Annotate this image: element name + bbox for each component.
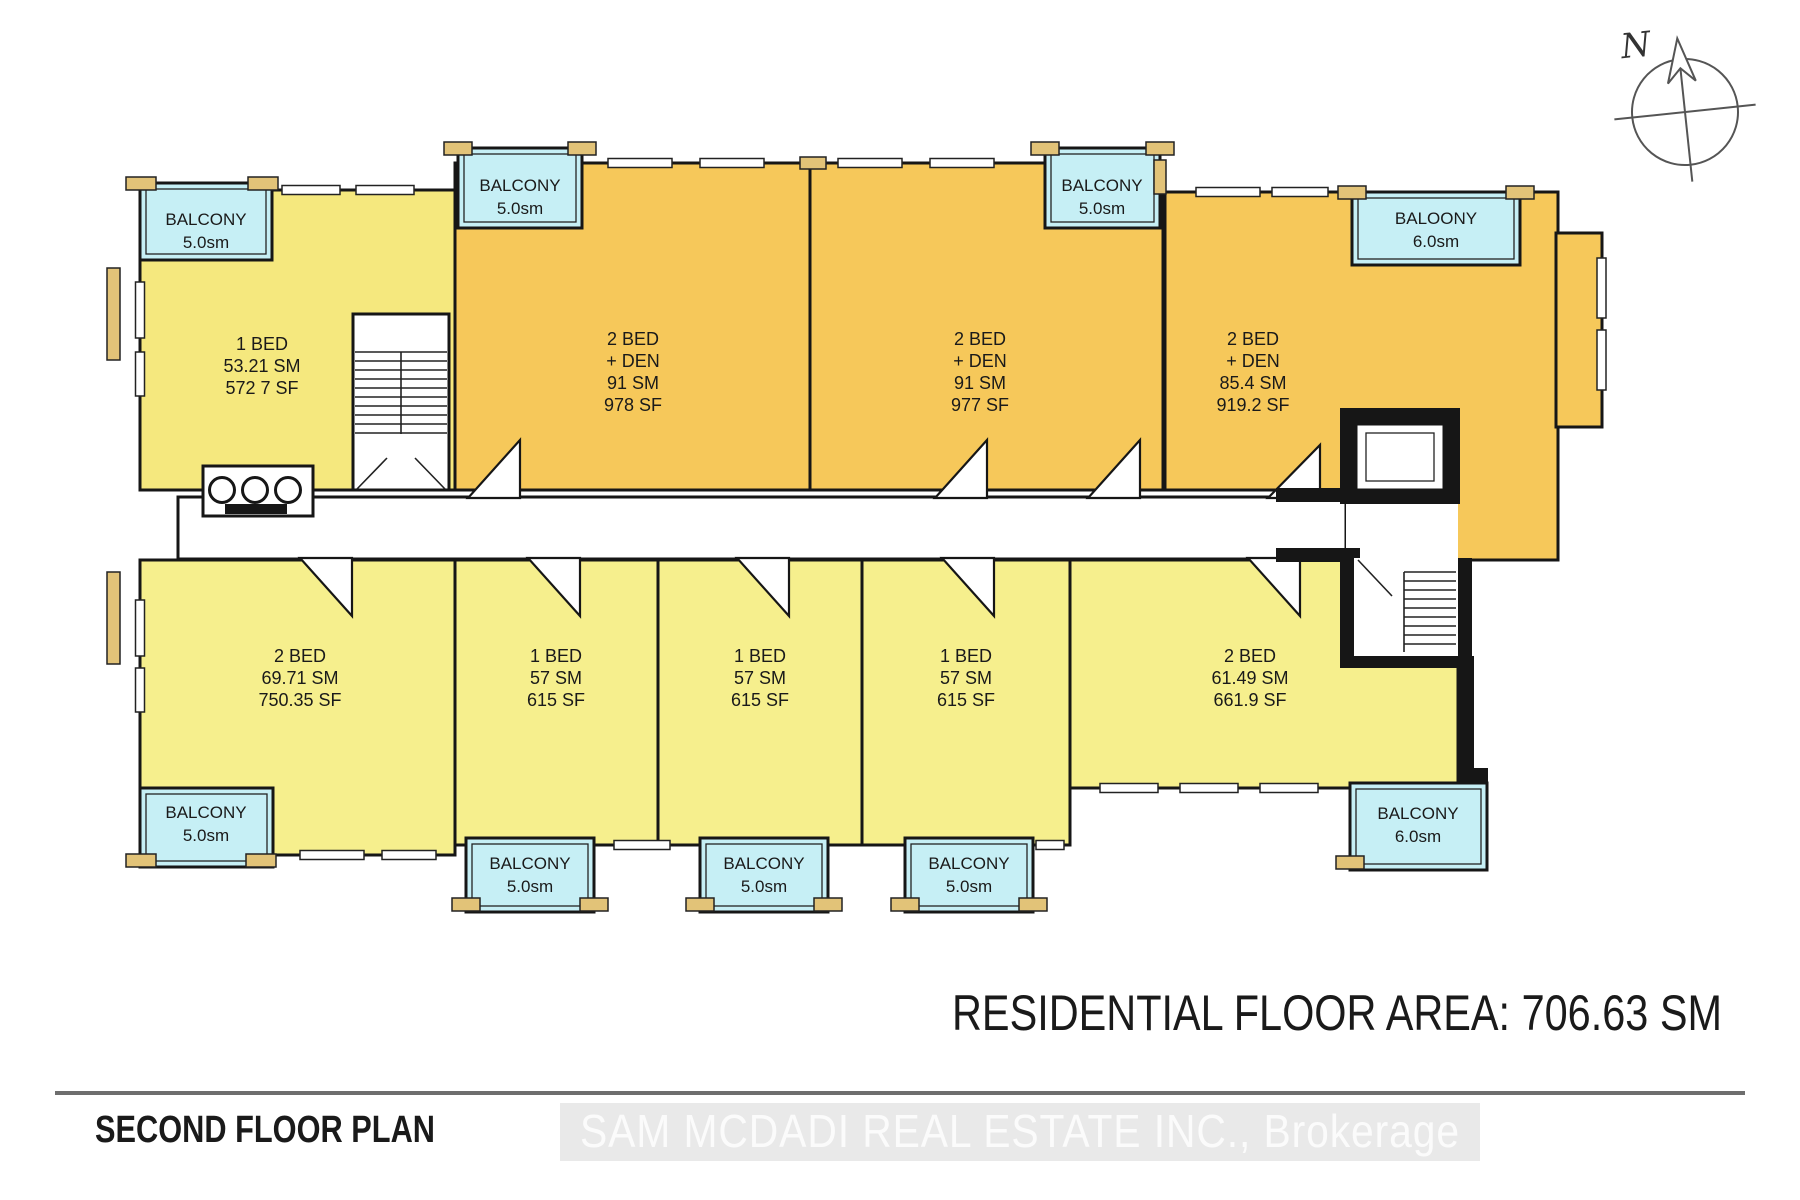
svg-text:57 SM: 57 SM [530,668,582,688]
wall-trim-block [568,142,596,155]
bay-window [1556,233,1602,427]
chute-circle [243,478,268,503]
svg-text:572 7 SF: 572 7 SF [225,378,298,398]
north-compass: N [1605,14,1763,189]
wall-trim-block [246,854,276,867]
core-wall [1458,768,1488,784]
svg-text:BALCONY: BALCONY [489,854,570,873]
balcony-bottom-unit7 [686,838,842,912]
svg-text:69.71 SM: 69.71 SM [261,668,338,688]
chute-circle [276,478,301,503]
svg-text:6.0sm: 6.0sm [1395,827,1441,846]
svg-text:661.9 SF: 661.9 SF [1213,690,1286,710]
svg-text:91 SM: 91 SM [954,373,1006,393]
wall-trim-block [107,572,120,664]
wall-trim-block [686,898,714,911]
core-wall [1276,488,1346,502]
svg-text:BALCONY: BALCONY [165,210,246,229]
svg-text:+ DEN: + DEN [953,351,1007,371]
wall-trim-block [814,898,842,911]
svg-text:5.0sm: 5.0sm [183,826,229,845]
svg-text:2 BED: 2 BED [607,329,659,349]
corridor [178,497,1346,559]
svg-text:6.0sm: 6.0sm [1413,232,1459,251]
svg-text:BALOONY: BALOONY [1395,209,1477,228]
wall-trim-block [580,898,608,911]
svg-text:61.49 SM: 61.49 SM [1211,668,1288,688]
svg-text:+ DEN: + DEN [606,351,660,371]
svg-text:1 BED: 1 BED [236,334,288,354]
wall-trim-block [126,854,156,867]
balcony-bottom-unit6 [452,838,608,912]
svg-text:57 SM: 57 SM [940,668,992,688]
svg-text:5.0sm: 5.0sm [497,199,543,218]
svg-text:1 BED: 1 BED [734,646,786,666]
unit-label-1-bed-bottom-a: 1 BED 57 SM 615 SF [527,646,585,710]
wall-trim-block [1336,856,1364,869]
wall-trim-block [444,142,472,155]
svg-text:615 SF: 615 SF [937,690,995,710]
svg-text:5.0sm: 5.0sm [946,877,992,896]
wall-trim-block [1031,142,1059,155]
svg-text:BALCONY: BALCONY [479,176,560,195]
svg-text:919.2 SF: 919.2 SF [1216,395,1289,415]
svg-text:1 BED: 1 BED [530,646,582,666]
elevator-shaft [1356,424,1444,490]
wall-trim-block [248,177,278,190]
wall-trim-block [1146,142,1174,155]
footer-divider [55,1091,1745,1095]
wall-trim-block [800,157,826,169]
stairwell-top [353,314,449,490]
svg-text:5.0sm: 5.0sm [183,233,229,252]
wall-trim-block [891,898,919,911]
floor-plan-drawing: 1 BED 53.21 SM 572 7 SF 2 BED + DEN 91 S… [0,0,1800,1200]
wall-trim-block [126,177,156,190]
svg-text:BALCONY: BALCONY [723,854,804,873]
svg-text:977 SF: 977 SF [951,395,1009,415]
svg-text:750.35 SF: 750.35 SF [258,690,341,710]
svg-text:91 SM: 91 SM [607,373,659,393]
svg-text:BALCONY: BALCONY [165,803,246,822]
compass-north-label: N [1618,24,1654,67]
balcony-bottom-unit8 [891,838,1047,912]
svg-text:5.0sm: 5.0sm [741,877,787,896]
corridor-core-extension [1346,504,1458,558]
brokerage-watermark: SAM MCDADI REAL ESTATE INC., Brokerage [580,1105,1460,1157]
svg-text:BALCONY: BALCONY [1377,804,1458,823]
unit-label-1-bed-bottom-b: 1 BED 57 SM 615 SF [731,646,789,710]
wall-trim-block [1506,186,1534,199]
lobby-niche [203,466,313,516]
svg-text:5.0sm: 5.0sm [1079,199,1125,218]
wall-trim-block [1154,160,1166,194]
svg-text:85.4 SM: 85.4 SM [1219,373,1286,393]
svg-text:615 SF: 615 SF [731,690,789,710]
svg-text:5.0sm: 5.0sm [507,877,553,896]
core-wall [1458,656,1474,782]
svg-text:2 BED: 2 BED [1227,329,1279,349]
wall-trim-block [1019,898,1047,911]
svg-text:2 BED: 2 BED [1224,646,1276,666]
niche-counter [225,504,287,514]
residential-floor-area-note: RESIDENTIAL FLOOR AREA: 706.63 SM [952,985,1722,1041]
unit-label-1-bed-bottom-c: 1 BED 57 SM 615 SF [937,646,995,710]
svg-text:BALCONY: BALCONY [1061,176,1142,195]
svg-text:2 BED: 2 BED [954,329,1006,349]
svg-text:53.21 SM: 53.21 SM [223,356,300,376]
chute-circle [210,478,235,503]
svg-text:978 SF: 978 SF [604,395,662,415]
svg-text:1 BED: 1 BED [940,646,992,666]
svg-text:2 BED: 2 BED [274,646,326,666]
page-title: SECOND FLOOR PLAN [95,1109,435,1151]
svg-text:57 SM: 57 SM [734,668,786,688]
floor-plan-page: 1 BED 53.21 SM 572 7 SF 2 BED + DEN 91 S… [0,0,1800,1200]
wall-trim-block [1338,186,1366,199]
svg-text:615 SF: 615 SF [527,690,585,710]
wall-trim-block [107,268,120,360]
wall-trim-block [452,898,480,911]
svg-text:BALCONY: BALCONY [928,854,1009,873]
svg-text:+ DEN: + DEN [1226,351,1280,371]
